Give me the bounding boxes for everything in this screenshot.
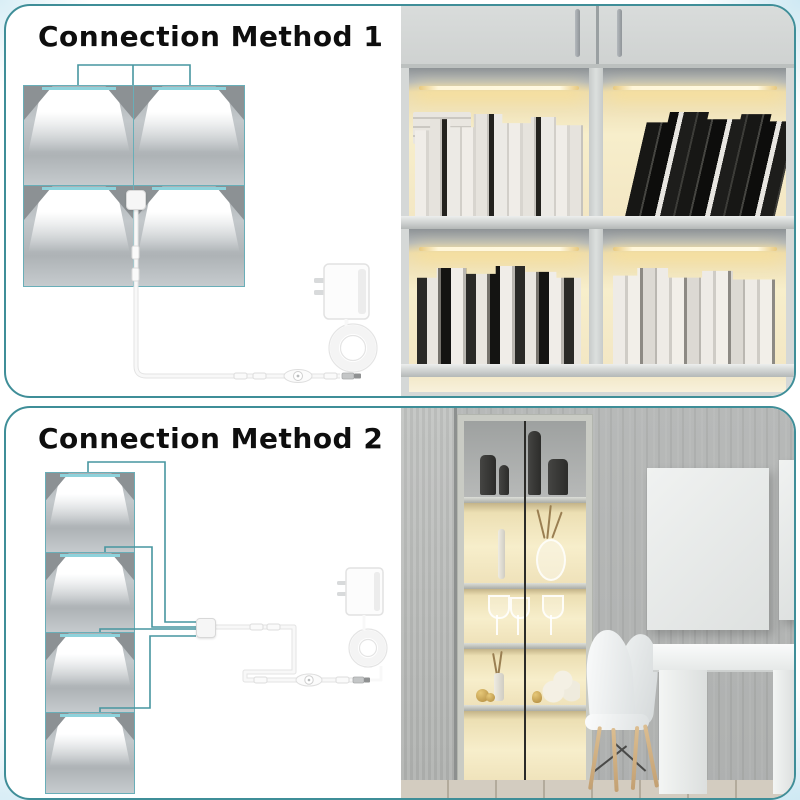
glass-door-edge bbox=[524, 421, 526, 783]
product-infographic: Connection Method 1 bbox=[0, 0, 800, 800]
dried-branch bbox=[551, 512, 562, 539]
section-connection-method-2: Connection Method 2 bbox=[4, 406, 796, 800]
display-cabinet bbox=[457, 414, 593, 790]
shelf-frame bbox=[786, 68, 794, 216]
shelf-board bbox=[401, 364, 794, 377]
led-strip-icon bbox=[613, 86, 777, 90]
shelf-board bbox=[401, 216, 794, 229]
coiled-cable-icon bbox=[329, 320, 377, 372]
shelf-divider bbox=[589, 68, 603, 216]
led-strip-icon bbox=[419, 86, 579, 90]
concrete-wall-panel bbox=[401, 408, 457, 798]
link-wire-icon bbox=[100, 629, 196, 632]
tall-vase bbox=[528, 431, 541, 495]
wine-glass-stem bbox=[550, 615, 552, 635]
link-wire-icon bbox=[88, 462, 196, 622]
inline-switch-icon bbox=[296, 674, 322, 686]
door-handle bbox=[617, 9, 622, 57]
dried-branch bbox=[546, 505, 552, 539]
white-books bbox=[613, 268, 775, 364]
power-adapter-icon bbox=[314, 264, 369, 326]
cable-connectors bbox=[132, 246, 337, 379]
splitter-connector-icon bbox=[196, 618, 216, 638]
shelf-frame bbox=[786, 229, 794, 364]
shelf-frame bbox=[401, 229, 409, 364]
black-books bbox=[625, 112, 787, 216]
wall-canvas-partial bbox=[779, 460, 794, 620]
wine-glass-stem bbox=[517, 615, 519, 635]
door-gap bbox=[596, 6, 599, 64]
power-cable bbox=[136, 208, 340, 376]
power-cable bbox=[214, 627, 366, 680]
wine-glass bbox=[510, 597, 530, 619]
desk-top bbox=[653, 644, 794, 672]
candlestick bbox=[498, 529, 505, 579]
shelf-compartment bbox=[603, 68, 787, 216]
vase bbox=[548, 459, 568, 495]
link-wire-icon bbox=[78, 65, 190, 85]
gold-ornament bbox=[532, 691, 542, 703]
inline-switch-icon bbox=[284, 370, 312, 383]
gold-ornament bbox=[486, 693, 495, 702]
lit-shelf-glow bbox=[409, 377, 786, 392]
shelf-row bbox=[401, 68, 794, 216]
desk-leg-panel bbox=[773, 670, 794, 794]
shelf-divider bbox=[589, 229, 603, 364]
shelf-row bbox=[401, 229, 794, 364]
mixed-books bbox=[417, 266, 581, 364]
shelf-compartment bbox=[409, 68, 589, 216]
photo-display-cabinet-room bbox=[401, 408, 794, 798]
vase bbox=[499, 465, 509, 495]
shelf-compartment bbox=[409, 229, 589, 364]
power-cable bbox=[136, 208, 340, 376]
chair-leg bbox=[643, 724, 659, 788]
wine-glass bbox=[488, 595, 510, 619]
wall-canvas bbox=[647, 468, 769, 630]
diffuser-reed bbox=[497, 651, 502, 675]
coiled-cable-icon bbox=[349, 629, 387, 680]
section-connection-method-1: Connection Method 1 bbox=[4, 4, 796, 398]
tiled-floor bbox=[401, 780, 794, 798]
chair-strut bbox=[614, 742, 647, 772]
link-wire-icon bbox=[100, 636, 196, 712]
white-coral bbox=[542, 665, 580, 703]
shelf-frame bbox=[401, 68, 409, 216]
wine-glass bbox=[542, 595, 564, 619]
led-strip-icon bbox=[419, 247, 579, 251]
dc-plug-icon bbox=[342, 373, 361, 379]
dc-plug-icon bbox=[353, 677, 370, 683]
cabinet-interior bbox=[464, 421, 586, 783]
diagram-2-wiring bbox=[6, 408, 399, 794]
photo-bookshelf-lighting bbox=[401, 6, 794, 396]
link-wire-icon bbox=[105, 547, 196, 627]
desk-leg-panel bbox=[659, 670, 707, 794]
wine-glass-stem bbox=[496, 615, 498, 635]
white-books bbox=[415, 114, 583, 216]
vase bbox=[480, 455, 496, 495]
shelf-compartment bbox=[603, 229, 787, 364]
diffuser-bottle bbox=[494, 673, 504, 701]
splitter-connector-icon bbox=[126, 190, 146, 210]
power-adapter-icon bbox=[337, 568, 383, 630]
dried-branch bbox=[536, 509, 545, 539]
led-strip-icon bbox=[613, 247, 777, 251]
chair-seat bbox=[585, 714, 649, 730]
door-handle bbox=[575, 9, 580, 57]
diagram-1-wiring bbox=[6, 6, 399, 392]
glass-vase bbox=[536, 539, 566, 581]
